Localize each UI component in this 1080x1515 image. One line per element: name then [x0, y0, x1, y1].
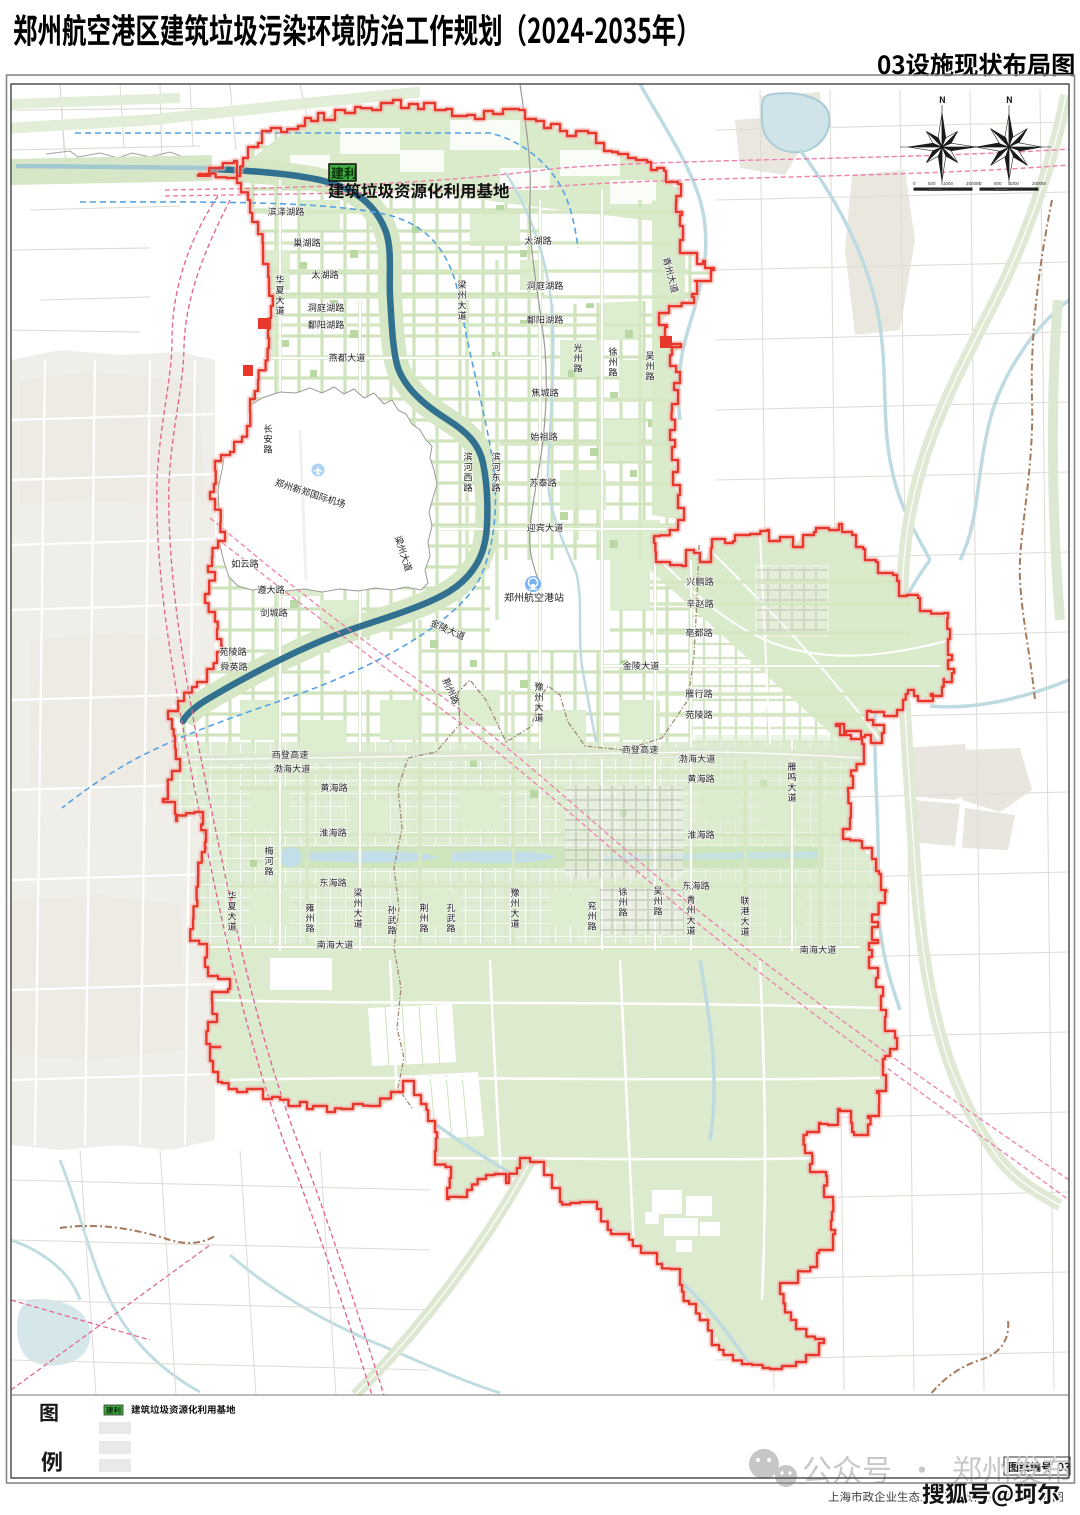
svg-text:500: 500 — [928, 181, 936, 186]
svg-text:500: 500 — [994, 181, 1002, 186]
svg-text:2000M: 2000M — [966, 181, 980, 186]
svg-text:1000: 1000 — [1009, 181, 1020, 186]
svg-text:1000: 1000 — [943, 181, 954, 186]
svg-text:2000M: 2000M — [1032, 181, 1046, 186]
